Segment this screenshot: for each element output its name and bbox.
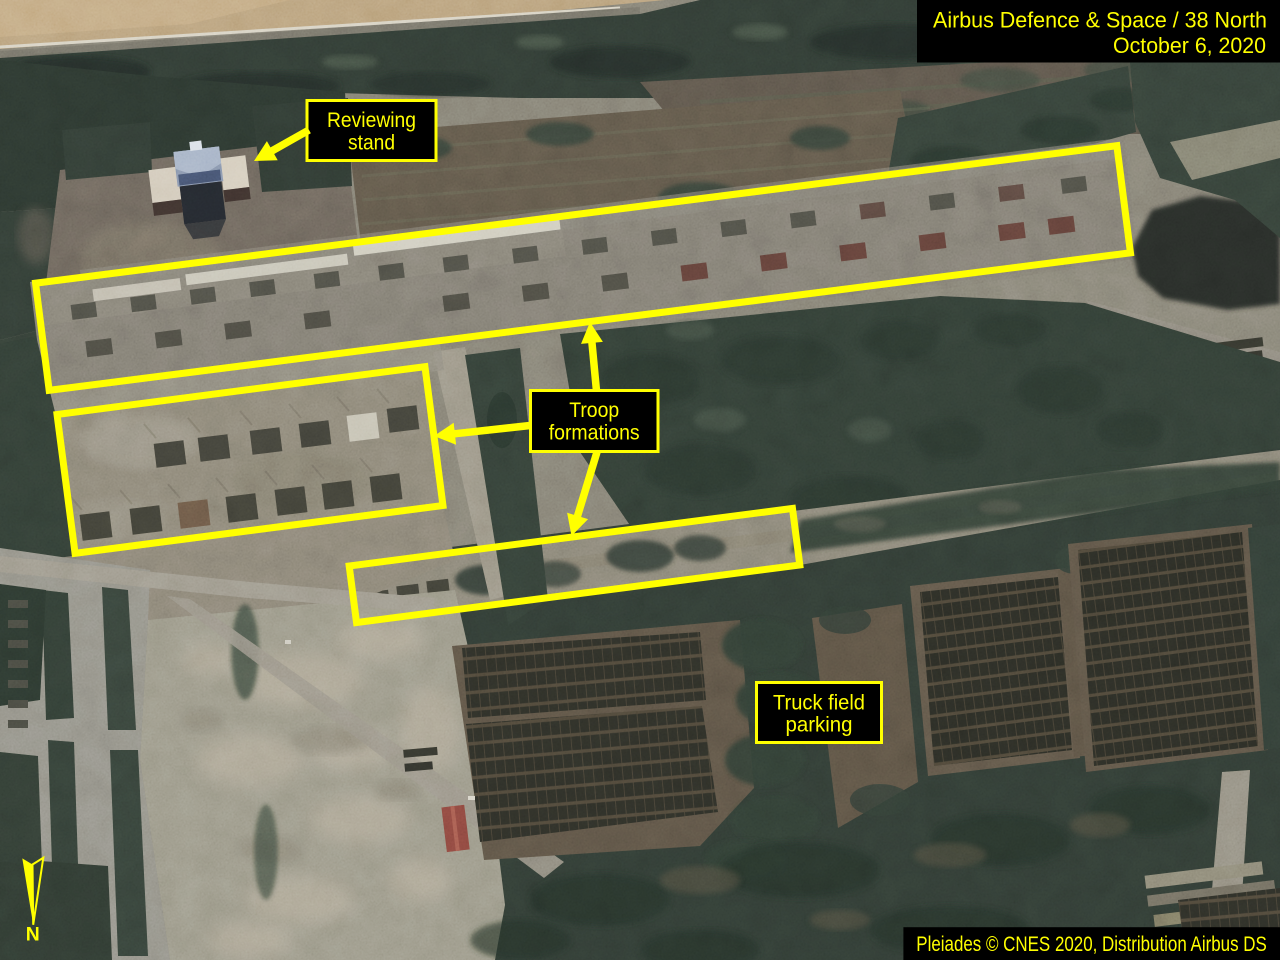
- svg-text:Pleiades © CNES 2020, Distribu: Pleiades © CNES 2020, Distribution Airbu…: [916, 933, 1267, 956]
- svg-text:N: N: [26, 925, 40, 946]
- svg-text:Truck field: Truck field: [773, 692, 865, 715]
- svg-text:Reviewing: Reviewing: [327, 109, 416, 132]
- svg-text:Troop: Troop: [569, 399, 619, 422]
- svg-text:formations: formations: [549, 421, 640, 444]
- svg-text:stand: stand: [348, 131, 395, 154]
- svg-text:Airbus Defence & Space / 38 No: Airbus Defence & Space / 38 North: [933, 8, 1267, 33]
- svg-text:October 6, 2020: October 6, 2020: [1113, 33, 1266, 58]
- svg-text:parking: parking: [786, 714, 853, 737]
